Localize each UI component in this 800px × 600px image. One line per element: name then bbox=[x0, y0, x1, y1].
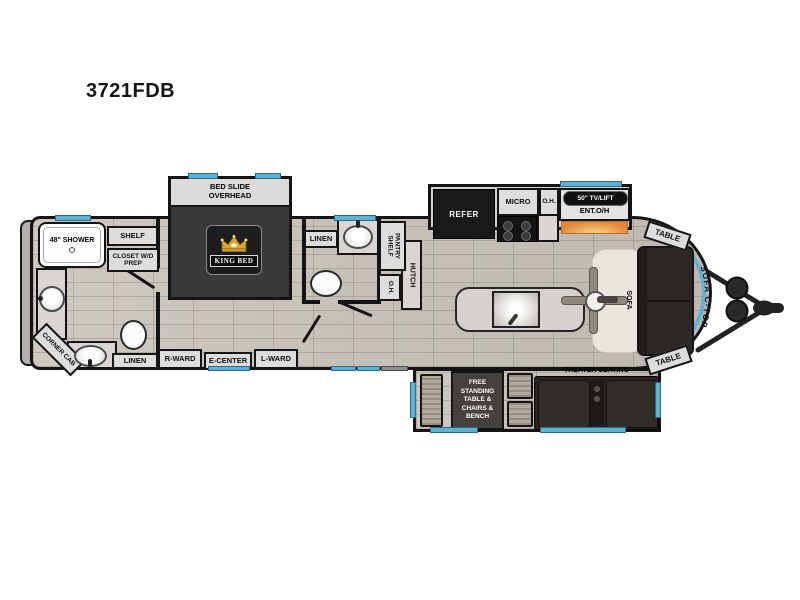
window bbox=[410, 382, 416, 418]
dinette-label-text: FREE STANDING TABLE & CHAIRS & BENCH bbox=[455, 379, 501, 421]
king-bed-label: KING BED bbox=[210, 255, 259, 267]
tv-lift-label: 50" TV/LIFT bbox=[578, 195, 614, 202]
theater-seating bbox=[534, 376, 659, 430]
fireplace bbox=[561, 221, 628, 234]
crown-icon bbox=[219, 234, 249, 253]
toilet bbox=[310, 270, 342, 297]
theater-console bbox=[590, 380, 604, 426]
faucet bbox=[88, 359, 92, 367]
sofa-countertop-label: SOFA C-TOP bbox=[638, 228, 730, 364]
mid-bath-linen: LINEN bbox=[304, 230, 338, 248]
shower-drain bbox=[69, 247, 75, 253]
kitchen-counter bbox=[537, 214, 559, 242]
window bbox=[357, 366, 380, 371]
window bbox=[188, 173, 218, 179]
window bbox=[55, 215, 91, 221]
pantry-shelf-text: PANTRY SHELF bbox=[386, 231, 400, 261]
dinette-chair bbox=[507, 401, 533, 427]
bed-slide-header: BED SLIDE OVERHEAD bbox=[171, 179, 289, 207]
king-bed: KING BED bbox=[206, 225, 262, 275]
left-wardrobe: L-WARD bbox=[254, 349, 298, 369]
overhead-text: O.H. bbox=[386, 281, 393, 294]
ottoman bbox=[597, 296, 618, 303]
svg-text:SOFA C-TOP: SOFA C-TOP bbox=[698, 265, 713, 330]
window bbox=[560, 181, 622, 187]
toilet bbox=[120, 320, 147, 350]
entry-door bbox=[381, 366, 408, 371]
bed-slide-label: BED SLIDE OVERHEAD bbox=[194, 183, 266, 200]
mid-bath-sink bbox=[343, 225, 373, 249]
linen-cabinet-front: LINEN bbox=[112, 353, 158, 369]
page-title: 3721FDB bbox=[86, 80, 175, 103]
floorplan-canvas: 3721FDB BED SLIDE OVERHEAD KING BED bbox=[0, 0, 800, 600]
tv-lift: 50" TV/LIFT bbox=[563, 191, 628, 206]
window bbox=[208, 366, 250, 371]
overhead-cabinet-label: O.H. bbox=[382, 274, 397, 301]
faucet bbox=[38, 296, 43, 301]
pantry-shelf-label: PANTRY SHELF bbox=[381, 223, 405, 270]
window bbox=[430, 427, 478, 433]
window bbox=[255, 173, 281, 179]
range-stove bbox=[497, 216, 537, 242]
window bbox=[331, 366, 356, 371]
sofa-label: SOFA bbox=[623, 282, 633, 318]
shower-label: 48" SHOWER bbox=[48, 237, 96, 245]
hutch-text: HUTCH bbox=[408, 263, 415, 288]
shelf-cabinet: SHELF bbox=[107, 226, 158, 246]
bed-slide: BED SLIDE OVERHEAD KING BED bbox=[168, 176, 292, 300]
overhead-cabinet-kitchen: O.H. bbox=[539, 188, 559, 216]
window bbox=[540, 427, 626, 433]
closet-wd-prep: CLOSET W/D PREP bbox=[107, 248, 159, 272]
window bbox=[334, 215, 376, 221]
entertainment-overhead-label: ENT.O/H bbox=[561, 206, 628, 215]
microwave-label: MICRO bbox=[497, 188, 539, 216]
faucet bbox=[356, 220, 360, 228]
wall bbox=[302, 300, 320, 304]
right-wardrobe: R-WARD bbox=[158, 349, 202, 369]
entertainment-center-unit: 50" TV/LIFT ENT.O/H bbox=[559, 188, 630, 221]
sofa-countertop-text: SOFA C-TOP bbox=[698, 265, 713, 330]
dinette-bench bbox=[420, 374, 443, 427]
dinette-chair bbox=[507, 373, 533, 399]
theater-seating-label: THEATER SEATING bbox=[534, 365, 659, 376]
sofa-text: SOFA bbox=[624, 290, 631, 309]
theater-seating-label-text: THEATER SEATING bbox=[564, 367, 629, 374]
dinette-label: FREE STANDING TABLE & CHAIRS & BENCH bbox=[451, 371, 504, 430]
hutch-label: HUTCH bbox=[405, 255, 419, 296]
window bbox=[655, 382, 661, 418]
refrigerator-label: REFER bbox=[449, 210, 479, 219]
refrigerator: REFER bbox=[433, 189, 495, 239]
island-sink bbox=[492, 291, 540, 328]
shower: 48" SHOWER bbox=[38, 222, 106, 268]
